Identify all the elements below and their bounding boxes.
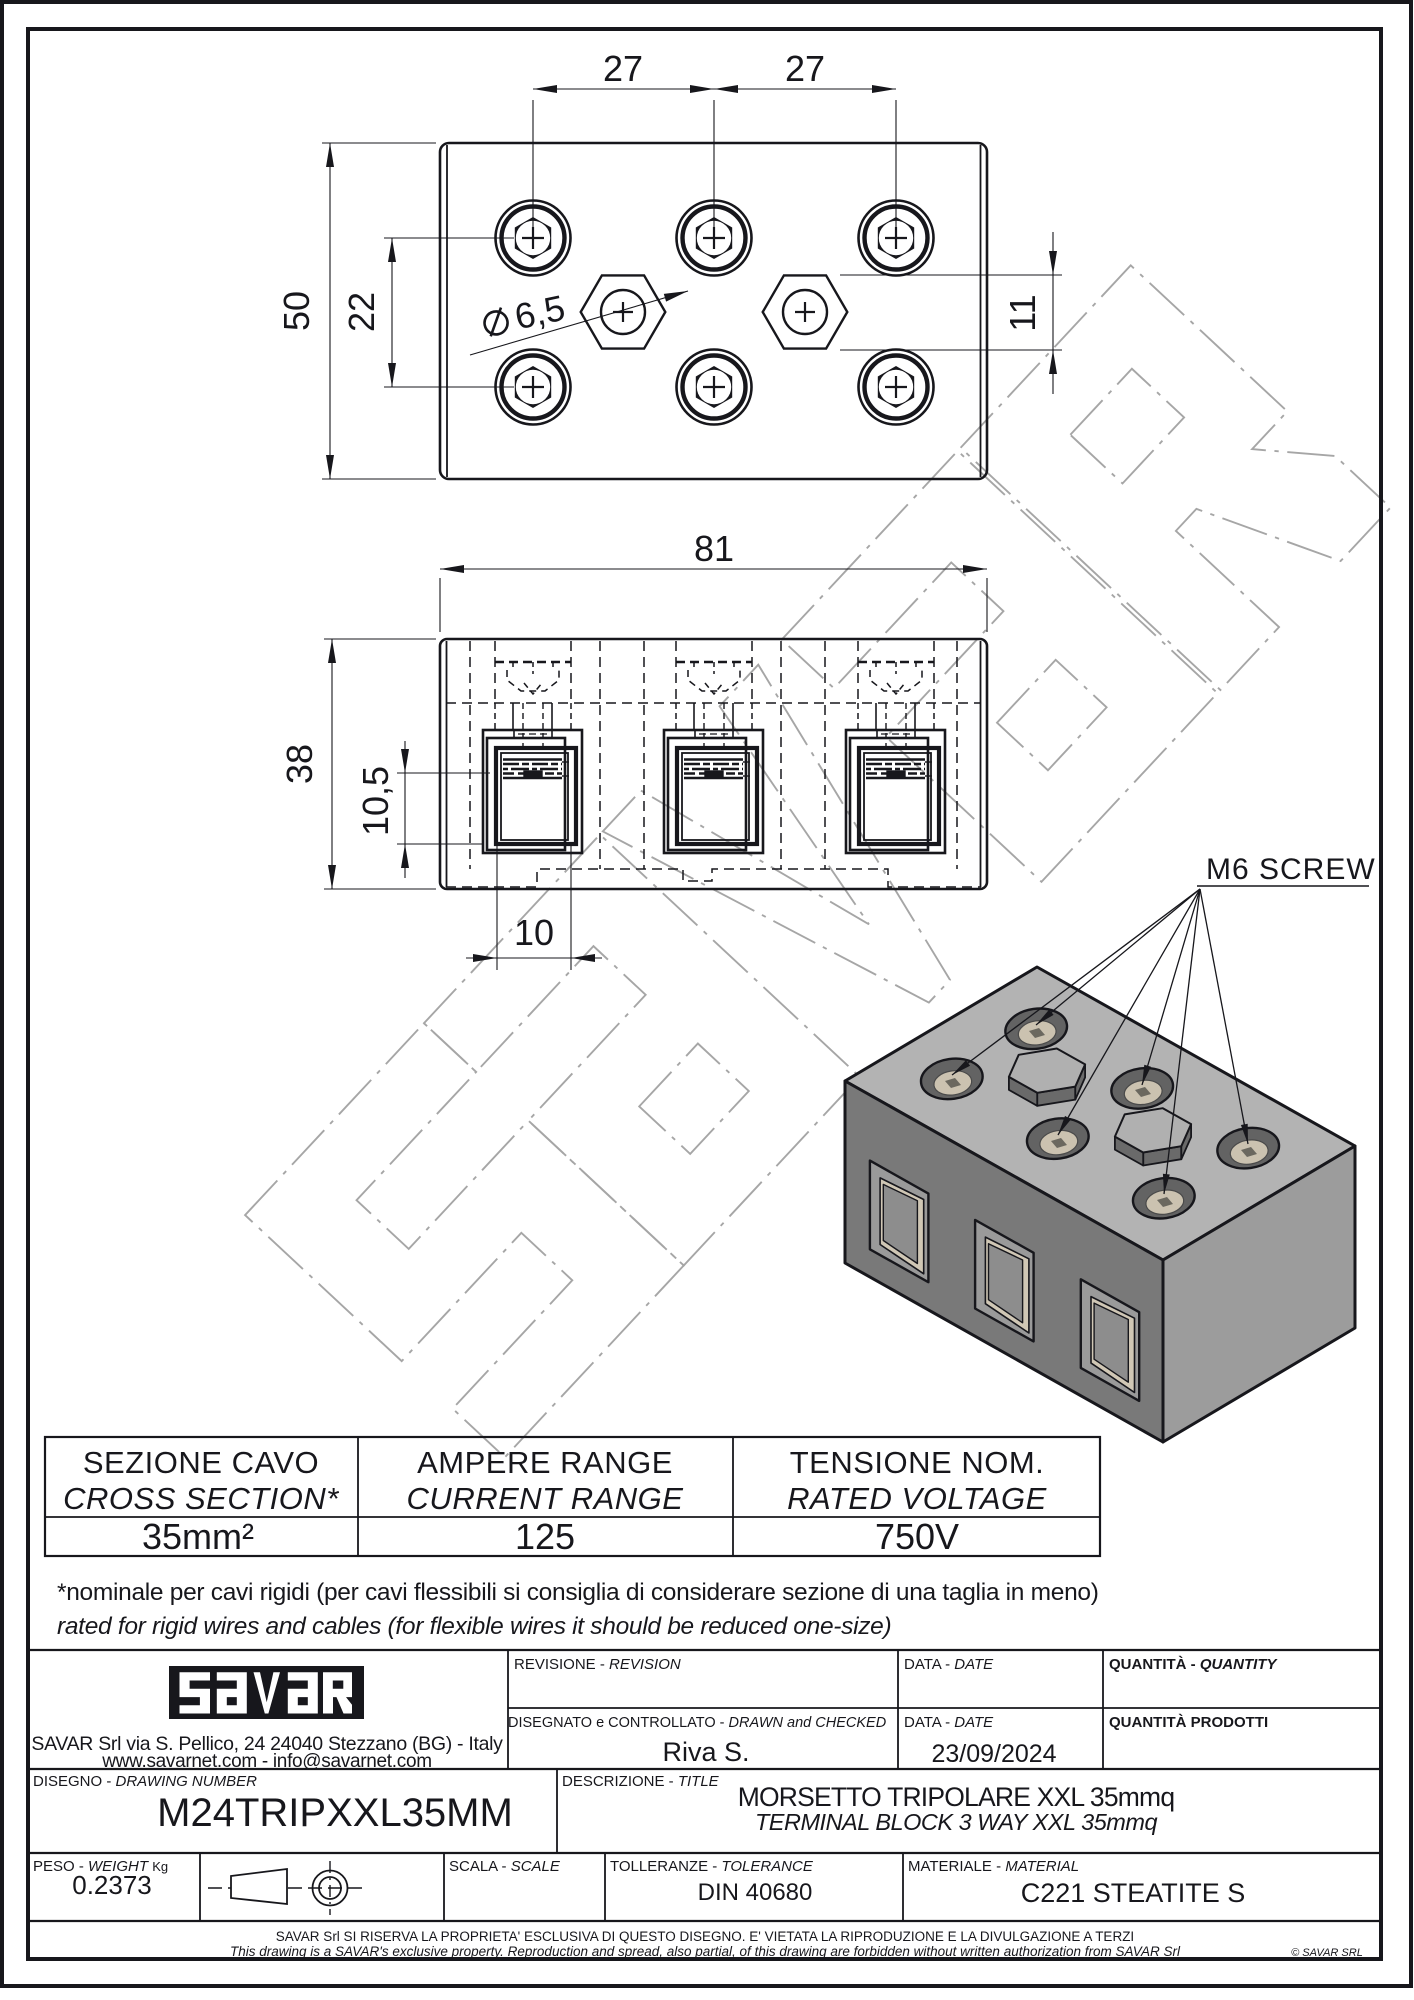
svg-text:DIN 40680: DIN 40680 — [698, 1879, 813, 1906]
svg-text:DATA - DATE: DATA - DATE — [904, 1714, 994, 1731]
svg-text:DATA - DATE: DATA - DATE — [904, 1656, 994, 1673]
svg-text:10,5: 10,5 — [355, 766, 396, 836]
svg-text:AMPERE RANGE: AMPERE RANGE — [417, 1445, 673, 1480]
svg-text:QUANTITÀ PRODOTTI: QUANTITÀ PRODOTTI — [1109, 1714, 1268, 1731]
svg-text:750V: 750V — [875, 1516, 959, 1557]
svg-text:11: 11 — [1002, 294, 1043, 331]
svg-text:27: 27 — [785, 48, 825, 89]
svg-text:SCALA - SCALE: SCALA - SCALE — [449, 1858, 561, 1875]
svg-text:50: 50 — [276, 291, 317, 331]
svg-text:27: 27 — [603, 48, 643, 89]
svg-text:Riva S.: Riva S. — [662, 1737, 749, 1767]
svg-text:REVISIONE - REVISION: REVISIONE - REVISION — [514, 1656, 681, 1673]
svg-text:© SAVAR SRL: © SAVAR SRL — [1291, 1947, 1363, 1959]
svg-text:rated for rigid wires and cabl: rated for rigid wires and cables (for fl… — [57, 1613, 891, 1640]
svg-text:QUANTITÀ - QUANTITY: QUANTITÀ - QUANTITY — [1109, 1656, 1278, 1673]
svg-text:MORSETTO TRIPOLARE XXL 35mmq: MORSETTO TRIPOLARE XXL 35mmq — [738, 1782, 1175, 1812]
svg-text:CROSS SECTION*: CROSS SECTION* — [63, 1481, 339, 1516]
svg-text:M6 SCREW: M6 SCREW — [1206, 853, 1376, 886]
svg-text:125: 125 — [515, 1516, 575, 1557]
svg-text:22: 22 — [341, 292, 382, 332]
svg-text:This drawing is a SAVAR's excl: This drawing is a SAVAR's exclusive prop… — [230, 1944, 1181, 1959]
svg-text:35mm²: 35mm² — [142, 1516, 254, 1557]
svg-text:SAVAR Srl SI RISERVA LA PROPRI: SAVAR Srl SI RISERVA LA PROPRIETA' ESCLU… — [276, 1929, 1134, 1944]
svg-text:38: 38 — [279, 744, 320, 784]
svg-text:CURRENT RANGE: CURRENT RANGE — [407, 1481, 684, 1516]
svg-text:*nominale per cavi rigidi (per: *nominale per cavi rigidi (per cavi fles… — [57, 1579, 1099, 1606]
svg-text:81: 81 — [694, 528, 734, 569]
svg-text:C221 STEATITE S: C221 STEATITE S — [1021, 1878, 1246, 1908]
svg-text:M24TRIPXXL35MM: M24TRIPXXL35MM — [157, 1791, 513, 1835]
svg-text:DISEGNO - DRAWING NUMBER: DISEGNO - DRAWING NUMBER — [33, 1773, 257, 1790]
svg-text:MATERIALE - MATERIAL: MATERIALE - MATERIAL — [908, 1858, 1079, 1875]
svg-text:DESCRIZIONE - TITLE: DESCRIZIONE - TITLE — [562, 1773, 720, 1790]
svg-text:www.savarnet.com - info@sava: www.savarnet.com - info@savarnet.com — [101, 1751, 432, 1772]
svg-text:TOLLERANZE - TOLERANCE: TOLLERANZE - TOLERANCE — [610, 1858, 814, 1875]
svg-text:0.2373: 0.2373 — [72, 1870, 152, 1900]
svg-text:RATED VOLTAGE: RATED VOLTAGE — [787, 1481, 1047, 1516]
svg-text:TERMINAL BLOCK 3 WAY XXL 35mm: TERMINAL BLOCK 3 WAY XXL 35mmq — [755, 1809, 1157, 1835]
svg-text:TENSIONE NOM.: TENSIONE NOM. — [790, 1445, 1045, 1480]
svg-text:10: 10 — [514, 912, 554, 953]
svg-text:DISEGNATO e CONTROLLATO - DRAW: DISEGNATO e CONTROLLATO - DRAWN and CHEC… — [508, 1715, 886, 1731]
svg-text:SEZIONE CAVO: SEZIONE CAVO — [83, 1445, 319, 1480]
svg-text:23/09/2024: 23/09/2024 — [931, 1740, 1056, 1768]
